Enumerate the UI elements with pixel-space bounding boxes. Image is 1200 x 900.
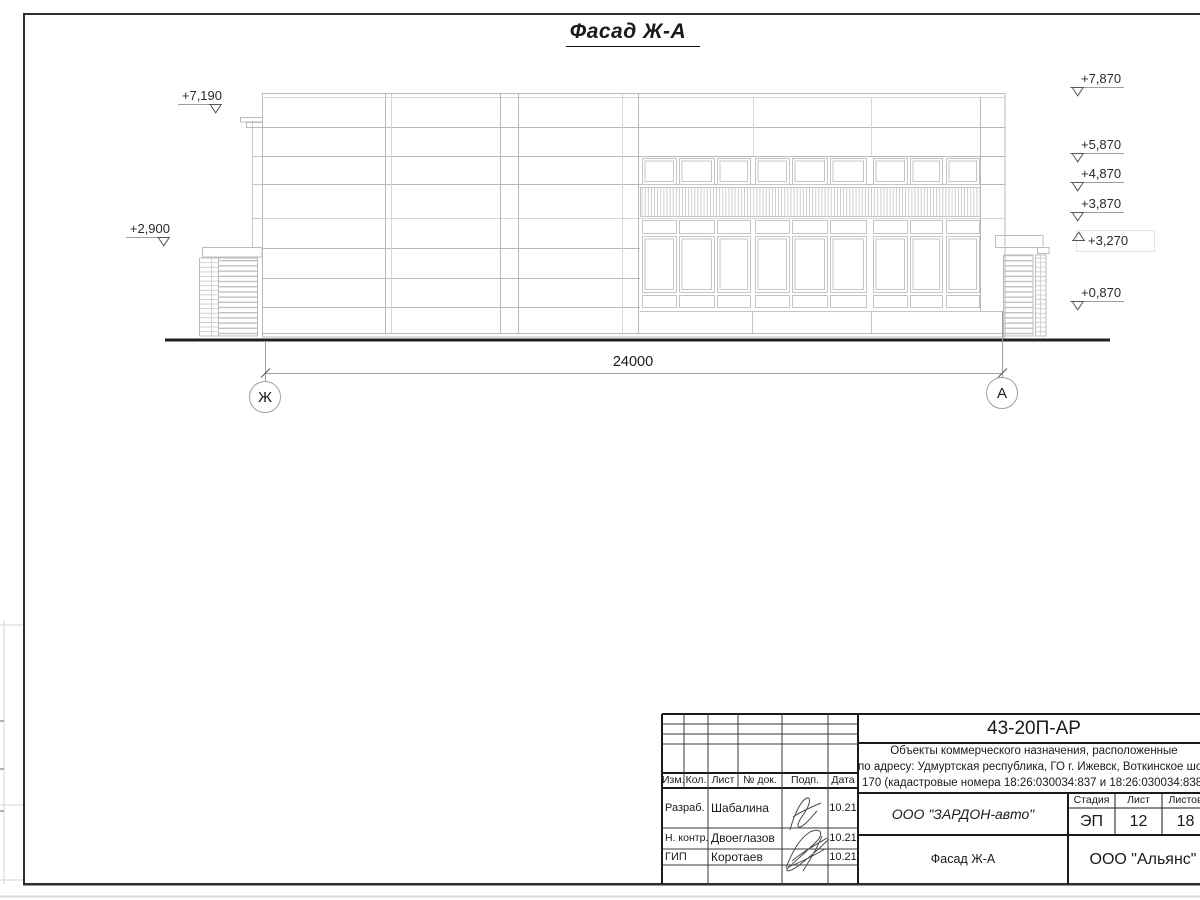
project-description-line2: по адресу: Удмуртская республика, ГО г. … [858, 761, 1200, 773]
axis-label-right: А [987, 385, 1017, 402]
elevation-label: +4,870 [1081, 166, 1121, 181]
elevation-arrow-icon [1071, 302, 1084, 310]
project-description-line3: 170 (кадастровые номера 18:26:030034:837… [858, 777, 1200, 789]
elevation-label: +5,870 [1081, 137, 1121, 152]
elevation-arrow-up-icon [1072, 232, 1085, 240]
row-date: 10.21 [828, 828, 858, 849]
elevation-label: +2,900 [96, 221, 170, 236]
elevation-arrow-icon [209, 105, 222, 113]
louver-screen-left [200, 248, 263, 337]
elevation-arrow-icon [1071, 154, 1084, 162]
row-name: Двоеглазов [711, 828, 775, 849]
elevation-arrow-icon [157, 238, 170, 246]
drawing-title-wrap: Фасад Ж-А [450, 20, 816, 47]
elevation-arrow-icon [1071, 213, 1084, 221]
sheets-value: 18 [1162, 808, 1200, 835]
col-header-kol: Кол. [684, 773, 708, 788]
contractor-name: ООО "Альянс" [1068, 835, 1200, 884]
sheet-value: 12 [1115, 808, 1162, 835]
col-header-data: Дата [828, 773, 858, 788]
col-header-list: Лист [708, 773, 738, 788]
window-grid [640, 159, 1003, 334]
row-role: Н. контр. [665, 828, 708, 849]
row-role: ГИП [665, 849, 687, 865]
stage-value: ЭП [1068, 808, 1115, 835]
row-role: Разраб. [665, 788, 705, 828]
left-margin-strip [0, 620, 23, 884]
louver-screen-right [996, 236, 1050, 337]
col-header-izm: Изм. [662, 773, 684, 788]
signature-razrab [790, 798, 821, 830]
row-name: Шабалина [711, 788, 769, 828]
sheet-label: Лист [1115, 793, 1162, 808]
signatures [786, 798, 829, 871]
elevation-arrow-icon [1071, 183, 1084, 191]
elevation-label: +0,870 [1081, 285, 1121, 300]
axis-label-left: Ж [250, 389, 280, 406]
project-description-line1: Объекты коммерческого назначения, распол… [858, 745, 1200, 757]
window-openings [643, 159, 980, 308]
stage-label: Стадия [1068, 793, 1115, 808]
elevation-arrow-icon [1071, 88, 1084, 96]
louvre-band [641, 188, 981, 217]
col-header-podp: Подп. [782, 773, 828, 788]
sheets-label: Листов [1162, 793, 1200, 808]
elevation-label: +3,870 [1081, 196, 1121, 211]
row-date: 10.21 [828, 849, 858, 865]
elevation-label: +7,870 [1081, 71, 1121, 86]
document-code: 43-20П-АР [858, 714, 1200, 743]
row-date: 10.21 [828, 788, 858, 828]
drawing-title: Фасад Ж-А [566, 20, 700, 47]
dimension-value: 24000 [583, 354, 683, 370]
organization-name: ООО "ЗАРДОН-авто" [858, 793, 1068, 835]
row-name: Коротаев [711, 849, 763, 865]
elevation-label: +7,190 [148, 88, 222, 103]
drawing-name: Фасад Ж-А [858, 835, 1068, 884]
elevation-label: +3,270 [1088, 233, 1128, 248]
col-header-ndok: № док. [738, 773, 782, 788]
